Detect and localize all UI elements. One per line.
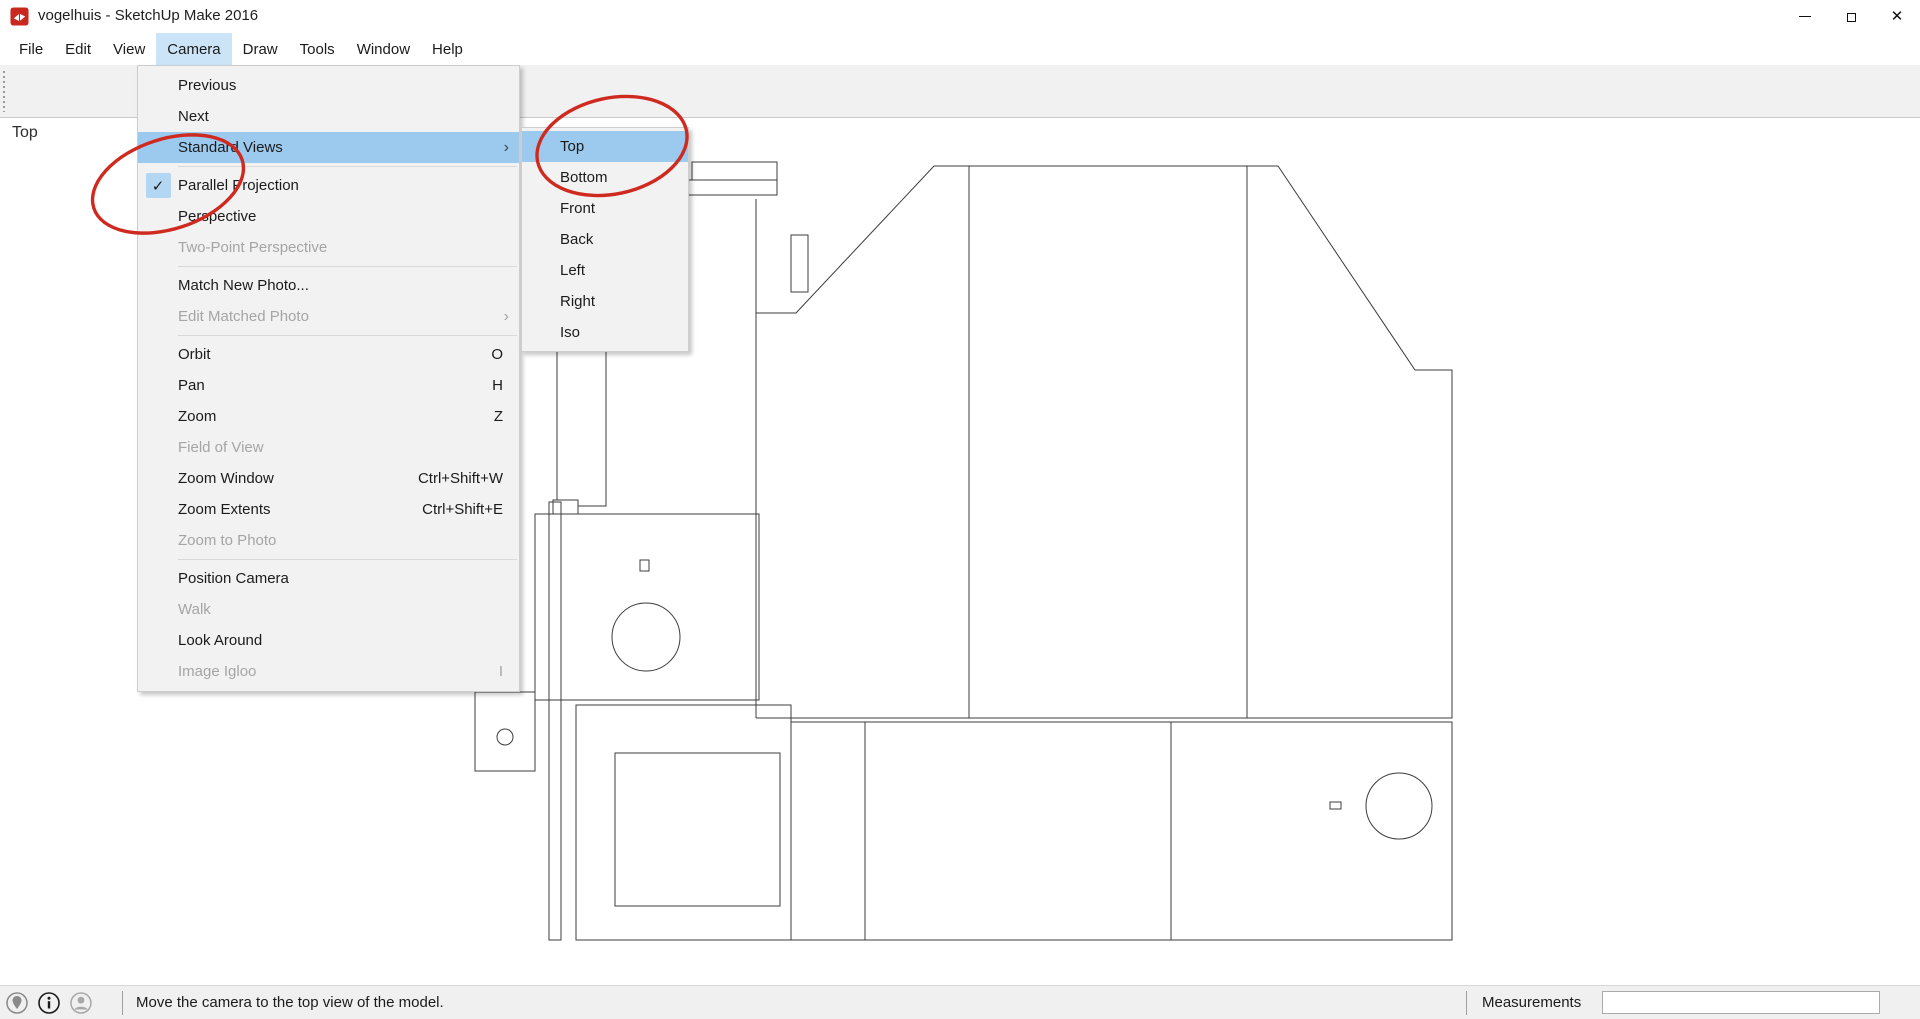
menu-separator <box>178 166 517 167</box>
camera-menu-item-look-around[interactable]: Look Around <box>138 625 519 656</box>
titlebar: vogelhuis - SketchUp Make 2016 ✕ <box>0 0 1920 33</box>
sign-in-icon[interactable] <box>70 992 92 1014</box>
menu-tools[interactable]: Tools <box>289 33 346 65</box>
views-submenu-item-back[interactable]: Back <box>522 224 688 255</box>
menu-item-label: Field of View <box>178 439 519 456</box>
camera-menu-item-perspective[interactable]: Perspective <box>138 201 519 232</box>
menu-view[interactable]: View <box>102 33 156 65</box>
camera-menu-item-standard-views[interactable]: Standard Views› <box>138 132 519 163</box>
toolbar-grip[interactable] <box>3 71 5 112</box>
camera-menu: PreviousNextStandard Views›✓Parallel Pro… <box>137 65 520 692</box>
menu-item-shortcut: H <box>492 377 519 394</box>
menu-separator <box>178 559 517 560</box>
camera-menu-item-next[interactable]: Next <box>138 101 519 132</box>
camera-menu-item-parallel-projection[interactable]: ✓Parallel Projection <box>138 170 519 201</box>
menu-item-shortcut: I <box>499 663 519 680</box>
menu-camera[interactable]: Camera <box>156 33 231 65</box>
menu-item-label: Back <box>560 231 688 248</box>
measurements-input[interactable] <box>1602 991 1880 1014</box>
views-submenu-item-bottom[interactable]: Bottom <box>522 162 688 193</box>
camera-menu-item-position-camera[interactable]: Position Camera <box>138 563 519 594</box>
standard-views-submenu: TopBottomFrontBackLeftRightIso <box>521 127 689 352</box>
menu-item-label: Top <box>560 138 688 155</box>
menu-item-label: Match New Photo... <box>178 277 519 294</box>
menu-edit[interactable]: Edit <box>54 33 102 65</box>
menu-item-label: Left <box>560 262 688 279</box>
statusbar-separator <box>1466 991 1467 1015</box>
camera-menu-item-zoom-to-photo: Zoom to Photo <box>138 525 519 556</box>
camera-menu-item-match-new-photo[interactable]: Match New Photo... <box>138 270 519 301</box>
minimize-button[interactable] <box>1782 0 1828 33</box>
camera-menu-item-edit-matched-photo: Edit Matched Photo› <box>138 301 519 332</box>
views-submenu-item-right[interactable]: Right <box>522 286 688 317</box>
menu-item-label: Zoom Extents <box>178 501 422 518</box>
camera-menu-item-zoom[interactable]: ZoomZ <box>138 401 519 432</box>
menu-item-label: Iso <box>560 324 688 341</box>
menu-item-label: Next <box>178 108 519 125</box>
menu-item-label: Front <box>560 200 688 217</box>
camera-menu-item-two-point-perspective: Two-Point Perspective <box>138 232 519 263</box>
window-title: vogelhuis - SketchUp Make 2016 <box>38 7 258 24</box>
camera-menu-item-field-of-view: Field of View <box>138 432 519 463</box>
status-message: Move the camera to the top view of the m… <box>136 994 444 1011</box>
menu-item-label: Pan <box>178 377 492 394</box>
menu-item-label: Walk <box>178 601 519 618</box>
menu-file[interactable]: File <box>8 33 54 65</box>
menu-item-label: Standard Views <box>178 139 504 156</box>
checkmark-box: ✓ <box>138 173 178 198</box>
menu-item-shortcut: Ctrl+Shift+W <box>418 470 519 487</box>
camera-menu-item-walk: Walk <box>138 594 519 625</box>
camera-menu-item-orbit[interactable]: OrbitO <box>138 339 519 370</box>
submenu-arrow-icon: › <box>504 308 519 326</box>
camera-menu-item-previous[interactable]: Previous <box>138 70 519 101</box>
geolocation-icon[interactable] <box>6 992 28 1014</box>
camera-menu-item-zoom-extents[interactable]: Zoom ExtentsCtrl+Shift+E <box>138 494 519 525</box>
restore-icon <box>1847 13 1856 22</box>
view-label: Top <box>12 124 38 142</box>
close-icon: ✕ <box>1891 9 1904 24</box>
checkmark-icon: ✓ <box>146 173 171 198</box>
menu-separator <box>178 266 517 267</box>
menu-item-label: Image Igloo <box>178 663 499 680</box>
menu-draw[interactable]: Draw <box>232 33 289 65</box>
minimize-icon <box>1799 16 1811 17</box>
menu-item-shortcut: Z <box>494 408 519 425</box>
menu-help[interactable]: Help <box>421 33 474 65</box>
menu-item-label: Right <box>560 293 688 310</box>
views-submenu-item-iso[interactable]: Iso <box>522 317 688 348</box>
menu-separator <box>178 335 517 336</box>
menu-item-label: Zoom <box>178 408 494 425</box>
menu-item-label: Zoom to Photo <box>178 532 519 549</box>
menu-window[interactable]: Window <box>346 33 421 65</box>
menubar: FileEditViewCameraDrawToolsWindowHelp <box>0 33 1920 65</box>
menu-item-shortcut: Ctrl+Shift+E <box>422 501 519 518</box>
restore-button[interactable] <box>1828 0 1874 33</box>
camera-menu-item-pan[interactable]: PanH <box>138 370 519 401</box>
sketchup-window: vogelhuis - SketchUp Make 2016 ✕ FileEdi… <box>0 0 1920 1019</box>
credits-info-icon[interactable] <box>38 992 60 1014</box>
close-button[interactable]: ✕ <box>1874 0 1920 33</box>
camera-menu-item-image-igloo: Image IglooI <box>138 656 519 687</box>
statusbar: Move the camera to the top view of the m… <box>0 985 1920 1019</box>
menu-item-shortcut: O <box>491 346 519 363</box>
measurements-label: Measurements <box>1482 994 1581 1011</box>
menu-item-label: Zoom Window <box>178 470 418 487</box>
views-submenu-item-front[interactable]: Front <box>522 193 688 224</box>
menu-item-label: Look Around <box>178 632 519 649</box>
menu-item-label: Edit Matched Photo <box>178 308 504 325</box>
submenu-arrow-icon: › <box>504 139 519 157</box>
menu-item-label: Bottom <box>560 169 688 186</box>
menu-item-label: Perspective <box>178 208 519 225</box>
sketchup-logo-icon <box>10 7 29 26</box>
menu-item-label: Parallel Projection <box>178 177 519 194</box>
menu-item-label: Previous <box>178 77 519 94</box>
menu-item-label: Position Camera <box>178 570 519 587</box>
window-controls: ✕ <box>1782 0 1920 33</box>
statusbar-separator <box>122 991 123 1015</box>
menu-item-label: Two-Point Perspective <box>178 239 519 256</box>
views-submenu-item-left[interactable]: Left <box>522 255 688 286</box>
views-submenu-item-top[interactable]: Top <box>522 131 688 162</box>
camera-menu-item-zoom-window[interactable]: Zoom WindowCtrl+Shift+W <box>138 463 519 494</box>
menu-item-label: Orbit <box>178 346 491 363</box>
